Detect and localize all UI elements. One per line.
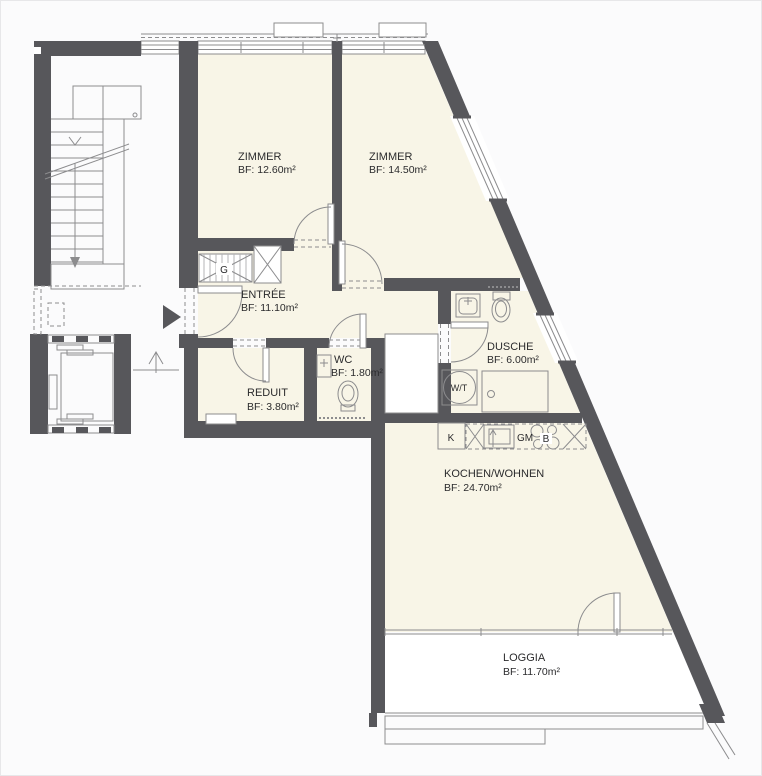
room-area-zimmer-1: BF: 12.60m² [238,164,296,176]
room-label-reduit: REDUIT [247,387,288,399]
elevator [48,335,114,433]
room-zimmer-1-floor [198,54,332,238]
room-area-entree: BF: 11.10m² [241,302,298,314]
elevator-counterweight [49,375,57,409]
loggia-parapet [385,713,735,759]
window-stair [141,41,179,54]
facade-pier [274,23,323,37]
floor-plan-page: ZIMMER BF: 12.60m² ZIMMER BF: 14.50m² EN… [0,0,762,776]
window-zimmer-1 [198,41,332,54]
room-label-zimmer-2: ZIMMER [369,151,412,163]
wall-notch [34,47,41,54]
room-area-wc: BF: 1.80m² [331,367,383,379]
room-area-loggia: BF: 11.70m² [503,666,560,678]
room-area-kochen: BF: 24.70m² [444,482,502,494]
room-label-zimmer-1: ZIMMER [238,151,281,163]
cooktop-label: B [543,434,550,445]
room-label-kochen: KOCHEN/WOHNEN [444,468,544,480]
facade-pier [379,23,426,37]
wardrobe-label: G [220,265,228,276]
corridor-markers [34,289,181,373]
shaft-void [385,334,438,413]
room-label-wc: WC [334,354,352,366]
apartment-entrance-arrow [163,305,181,329]
room-area-reduit: BF: 3.80m² [247,401,299,413]
wall-niche [206,414,236,424]
room-label-entree: ENTRÉE [241,288,286,301]
room-label-dusche: DUSCHE [487,341,533,353]
dishwasher-label: GM [517,433,533,444]
fridge-label: K [448,433,455,444]
room-area-zimmer-2: BF: 14.50m² [369,164,427,176]
room-area-dusche: BF: 6.00m² [487,354,539,366]
elevator-car [61,353,113,421]
shaft-box [254,246,281,283]
washer-dryer-label: W/T [451,383,468,393]
floor-plan: ZIMMER BF: 12.60m² ZIMMER BF: 14.50m² EN… [1,1,762,776]
room-label-loggia: LOGGIA [503,652,546,664]
